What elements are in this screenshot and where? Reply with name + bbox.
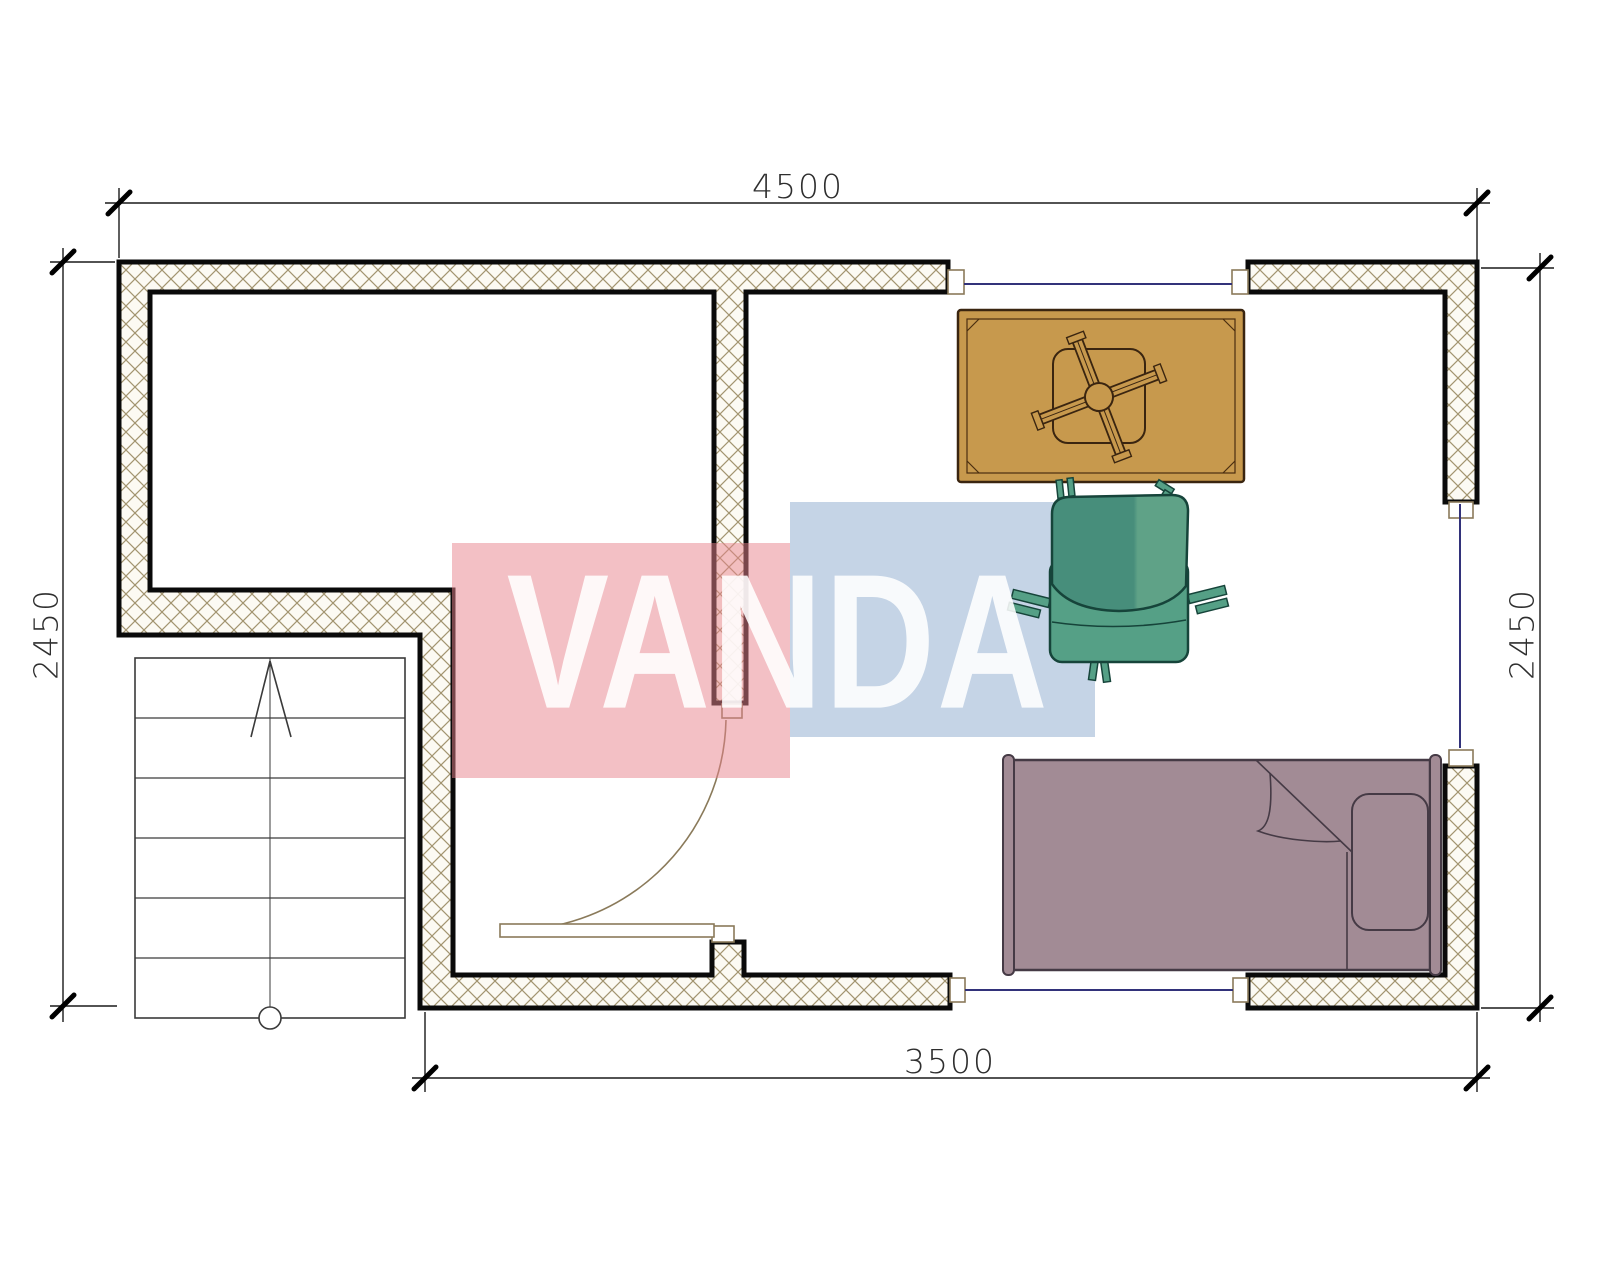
door-leaf: [500, 924, 714, 937]
pillow: [1352, 794, 1428, 930]
dimension-label-bottom: 3500: [904, 1042, 996, 1081]
dimension-label-right: 2450: [1503, 588, 1542, 680]
dimension-label-top: 4500: [752, 167, 844, 206]
staircase: [135, 658, 405, 1029]
single-bed: [1003, 755, 1441, 975]
floor-plan-canvas: 4500 3500 2450 2450 VANDA: [0, 0, 1600, 1280]
stair-start-marker: [259, 1007, 281, 1029]
watermark-text: VANDA: [507, 531, 1050, 752]
wall-top-right-section: [1248, 262, 1477, 502]
table: [958, 310, 1244, 485]
dimension-label-left: 2450: [27, 588, 66, 680]
